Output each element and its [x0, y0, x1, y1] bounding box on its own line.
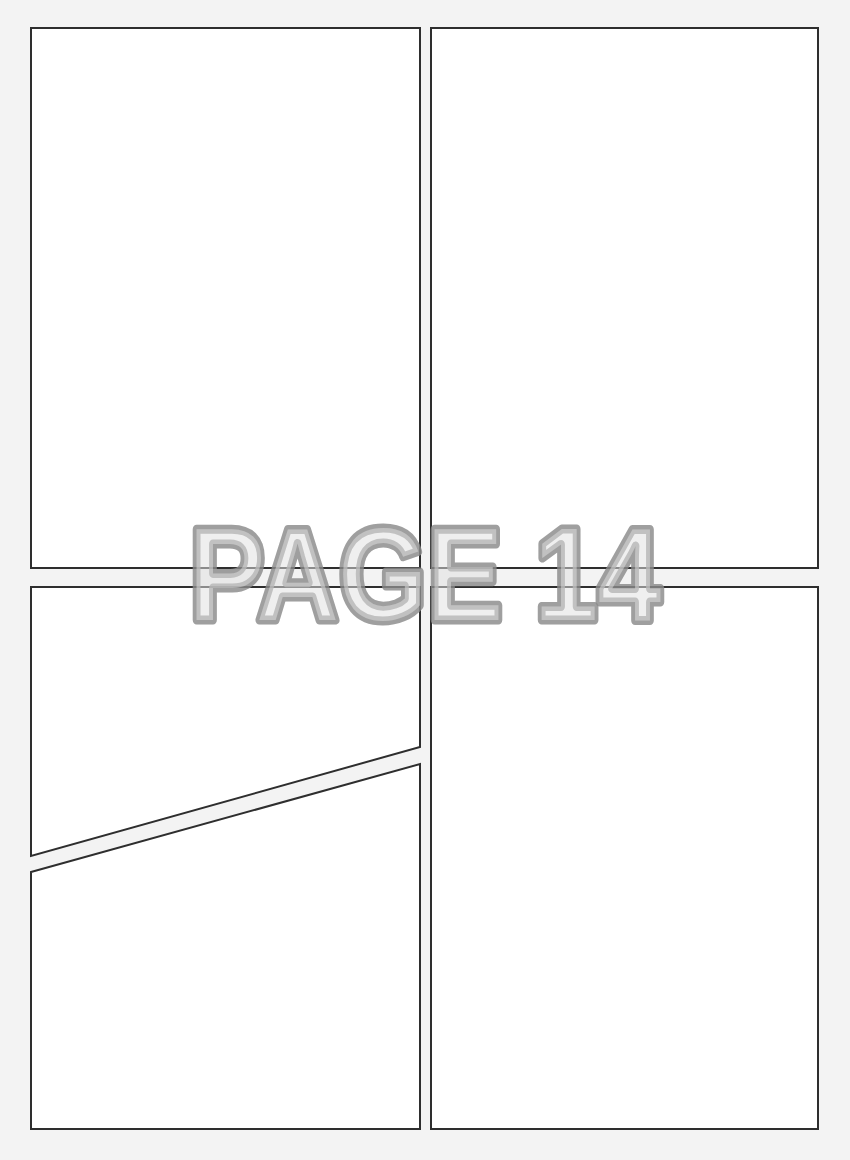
comic-page-template: PAGE 14	[0, 0, 850, 1160]
panel-bottom-right	[430, 586, 819, 1130]
panel-top-left	[30, 27, 421, 569]
panel-bottom-left-group	[30, 586, 421, 1130]
panel-top-right	[430, 27, 819, 569]
